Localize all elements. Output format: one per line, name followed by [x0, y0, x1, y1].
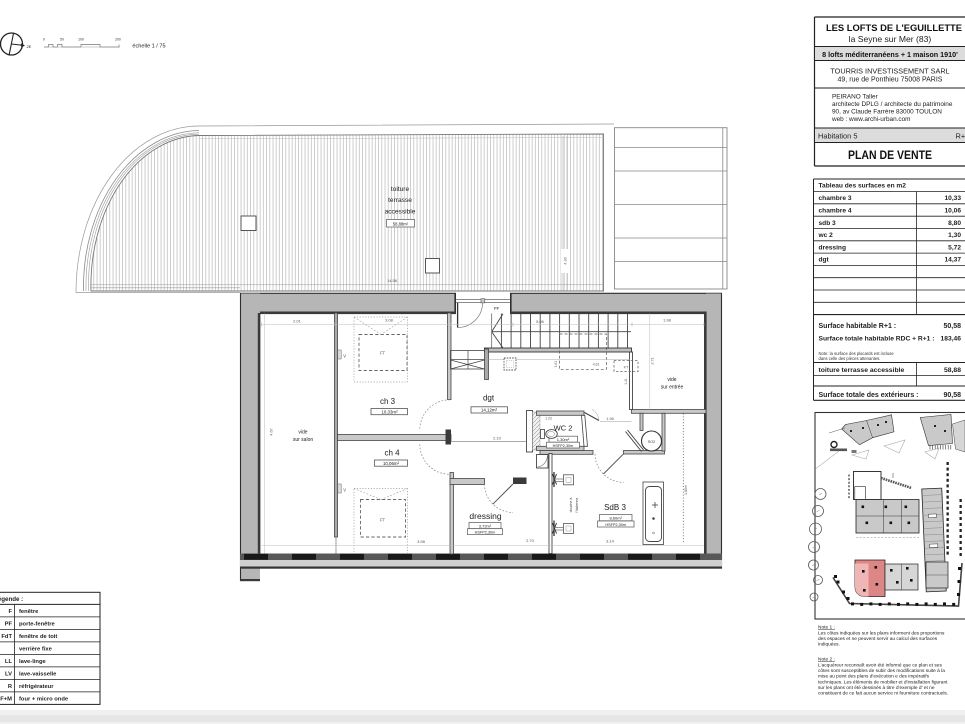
svg-text:des espaces et ne peuvent serv: des espaces et ne peuvent servir au calc… [818, 636, 938, 642]
svg-text:PLAN DE VENTE: PLAN DE VENTE [848, 148, 932, 162]
svg-text:PEIRANO Taller: PEIRANO Taller [832, 94, 879, 101]
svg-text:FT: FT [624, 365, 629, 369]
svg-text:terrasse: terrasse [388, 197, 412, 204]
svg-text:2.71: 2.71 [651, 358, 655, 365]
svg-text:3.14: 3.14 [606, 539, 615, 544]
svg-text:49, rue de Ponthieu 75008 PARI: 49, rue de Ponthieu 75008 PARIS [838, 77, 943, 84]
svg-text:3,72m²: 3,72m² [479, 524, 492, 529]
svg-text:183,46: 183,46 [941, 336, 962, 343]
svg-text:1,80m: 1,80m [684, 485, 688, 495]
svg-text:14,37: 14,37 [944, 257, 961, 264]
svg-text:2.10: 2.10 [493, 435, 502, 440]
svg-text:10,06: 10,06 [944, 207, 961, 214]
svg-text:Surface totale des extérieurs: Surface totale des extérieurs : [819, 392, 919, 399]
svg-text:L'acquéreur reconnaît avoir ét: L'acquéreur reconnaît avoir été informé … [818, 663, 942, 669]
svg-text:8 lofts méditerranéens + 1 mai: 8 lofts méditerranéens + 1 maison 1910' [822, 50, 958, 59]
svg-text:Note 2 :: Note 2 : [818, 657, 835, 663]
svg-text:50: 50 [60, 38, 64, 42]
svg-text:R+1: R+1 [956, 132, 965, 141]
svg-text:accessible: accessible [385, 209, 416, 216]
svg-text:58,88: 58,88 [944, 367, 961, 374]
svg-text:Surface habitable R+1 :: Surface habitable R+1 : [819, 323, 897, 330]
svg-text:architecte DPLG / architecte d: architecte DPLG / architecte du patrimoi… [832, 101, 953, 108]
svg-text:sur entrée: sur entrée [661, 385, 684, 391]
svg-text:lave-vaisselle: lave-vaisselle [19, 672, 57, 678]
svg-text:LV: LV [5, 672, 12, 678]
svg-text:TOURRIS INVESTISSEMENT SARL: TOURRIS INVESTISSEMENT SARL [830, 67, 949, 76]
svg-text:PF: PF [494, 306, 500, 311]
svg-text:porte-fenêtre: porte-fenêtre [19, 622, 56, 628]
svg-text:3.08: 3.08 [385, 318, 394, 323]
svg-text:dgt: dgt [819, 257, 830, 264]
svg-text:5,72: 5,72 [948, 244, 961, 251]
svg-text:2E: 2E [27, 45, 32, 49]
svg-text:14.56: 14.56 [387, 278, 398, 283]
svg-text:mise au point des plans d'exéc: mise au point des plans d'exécution e de… [818, 674, 930, 680]
svg-text:lave-linge: lave-linge [19, 659, 47, 665]
svg-text:1.96: 1.96 [606, 417, 613, 421]
svg-text:FdT: FdT [1, 634, 12, 640]
svg-text:8,60m²: 8,60m² [609, 516, 622, 521]
svg-text:douche à: douche à [569, 498, 573, 513]
svg-text:1,30: 1,30 [948, 232, 961, 239]
svg-text:toiture terrasse accessible: toiture terrasse accessible [819, 367, 905, 374]
svg-text:la Seyne sur Mer (83): la Seyne sur Mer (83) [849, 34, 932, 44]
svg-text:ch 4: ch 4 [384, 449, 400, 458]
svg-text:fenêtre de toit: fenêtre de toit [19, 634, 57, 640]
svg-text:1.23: 1.23 [545, 417, 552, 421]
svg-text:3.98: 3.98 [417, 539, 426, 544]
svg-text:90,58: 90,58 [943, 392, 961, 399]
svg-text:PF: PF [5, 622, 13, 628]
svg-text:F: F [8, 609, 12, 615]
svg-text:14,12m²: 14,12m² [481, 408, 498, 413]
svg-text:four + micro onde: four + micro onde [19, 697, 69, 703]
svg-text:échelle 1 / 75: échelle 1 / 75 [132, 44, 165, 50]
svg-text:réfrigérateur: réfrigérateur [19, 684, 54, 690]
svg-text:dgt: dgt [483, 394, 495, 403]
svg-text:dans celle des pièces attenant: dans celle des pièces attenantes. [819, 356, 881, 361]
svg-text:SdB 3: SdB 3 [604, 503, 626, 512]
svg-text:Note 1 :: Note 1 : [818, 625, 835, 631]
svg-text:fenêtre: fenêtre [19, 609, 39, 615]
svg-text:dressing: dressing [819, 244, 846, 251]
svg-text:dressing: dressing [469, 511, 501, 521]
svg-text:2.70: 2.70 [526, 538, 535, 543]
svg-text:LES LOFTS DE L'EGUILLETTE: LES LOFTS DE L'EGUILLETTE [826, 22, 962, 33]
svg-text:techniques. Les éléments de mo: techniques. Les éléments de mobilier et … [818, 679, 948, 685]
svg-text:58,88m²: 58,88m² [393, 221, 409, 226]
svg-text:sur les plans ont été dessinés: sur les plans ont été dessinés à titre d… [818, 685, 935, 691]
svg-text:chambre 3: chambre 3 [819, 195, 852, 202]
svg-text:1.41: 1.41 [624, 378, 628, 385]
svg-text:FT: FT [380, 351, 386, 356]
svg-text:verrière fixe: verrière fixe [19, 647, 53, 653]
svg-text:HSFP2,30m: HSFP2,30m [605, 523, 626, 527]
svg-text:4.63: 4.63 [593, 363, 600, 367]
svg-text:indiquées.: indiquées. [818, 642, 840, 648]
svg-text:10,33m²: 10,33m² [381, 409, 398, 414]
svg-text:4.30: 4.30 [564, 257, 568, 264]
svg-text:50,58: 50,58 [943, 323, 961, 330]
svg-text:90, av Claude Farrère 83000 TO: 90, av Claude Farrère 83000 TOULON [832, 109, 942, 116]
svg-text:1,30m²: 1,30m² [557, 437, 570, 442]
svg-text:wc 2: wc 2 [818, 232, 834, 239]
svg-text:2.01: 2.01 [293, 318, 302, 323]
svg-text:vide: vide [667, 377, 676, 383]
svg-text:sur salon: sur salon [293, 437, 314, 443]
svg-text:F+M: F+M [0, 697, 12, 703]
svg-text:V: V [343, 354, 346, 359]
svg-text:ch 3: ch 3 [380, 397, 396, 406]
svg-text:4.67: 4.67 [270, 428, 274, 435]
svg-text:web : www.archi-urban.com: web : www.archi-urban.com [831, 116, 911, 123]
svg-text:1.61: 1.61 [554, 361, 558, 367]
svg-text:sdb 3: sdb 3 [819, 220, 837, 227]
svg-text:chambre 4: chambre 4 [819, 207, 852, 214]
svg-text:côtes sont susceptibles de sub: côtes sont susceptibles de subir des mod… [818, 668, 945, 674]
svg-text:HSFP2,30m: HSFP2,30m [553, 444, 574, 448]
svg-text:10,33: 10,33 [944, 195, 961, 202]
svg-text:100: 100 [78, 38, 84, 42]
svg-text:SO2: SO2 [648, 440, 656, 444]
svg-text:Surface totale habitable RDC +: Surface totale habitable RDC + R+1 : [819, 336, 935, 343]
svg-text:8,80: 8,80 [948, 220, 961, 227]
svg-text:200: 200 [115, 38, 121, 42]
svg-text:5.06: 5.06 [536, 319, 545, 324]
svg-text:HSFP2,30m: HSFP2,30m [475, 531, 496, 535]
svg-text:10,06m²: 10,06m² [383, 461, 400, 466]
svg-text:Légende :: Légende : [0, 596, 23, 603]
svg-text:FT: FT [380, 518, 386, 523]
svg-text:1.98: 1.98 [663, 318, 672, 323]
svg-text:constituent de ce fait aucun s: constituent de ce fait aucun service ni … [818, 691, 948, 697]
svg-text:Tableau des surfaces en m2: Tableau des surfaces en m2 [819, 183, 907, 190]
svg-text:toiture: toiture [391, 186, 410, 193]
svg-text:Les côtes indiquées sur les pl: Les côtes indiquées sur les plans inform… [818, 631, 945, 637]
svg-text:l'italienne: l'italienne [575, 498, 579, 513]
svg-text:Habitation 5: Habitation 5 [818, 132, 857, 141]
svg-text:LL: LL [5, 659, 13, 665]
svg-text:V: V [343, 488, 346, 493]
svg-text:0: 0 [43, 38, 45, 42]
svg-text:vide: vide [298, 430, 307, 436]
